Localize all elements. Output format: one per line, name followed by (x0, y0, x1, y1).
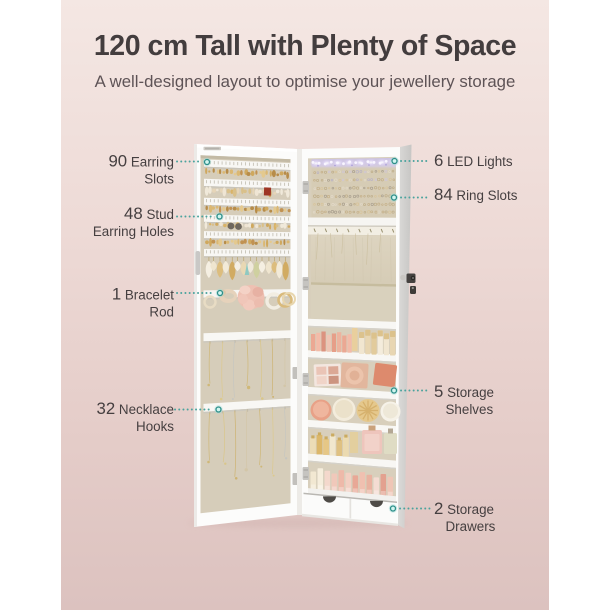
svg-text:A well-designed layout to opti: A well-designed layout to optimise your … (95, 72, 516, 91)
svg-text:48 Stud: 48 Stud (124, 204, 174, 223)
svg-text:Rod: Rod (149, 305, 174, 320)
svg-text:90 Earring: 90 Earring (108, 152, 174, 171)
svg-text:32 Necklace: 32 Necklace (97, 399, 174, 418)
svg-text:Earring Holes: Earring Holes (93, 224, 174, 239)
svg-text:2 Storage: 2 Storage (434, 499, 494, 518)
svg-text:6 LED Lights: 6 LED Lights (434, 151, 513, 170)
svg-text:5 Storage: 5 Storage (434, 382, 494, 401)
svg-text:1 Bracelet: 1 Bracelet (112, 285, 174, 304)
svg-text:Slots: Slots (144, 172, 174, 187)
svg-text:Drawers: Drawers (446, 519, 496, 534)
svg-text:84 Ring Slots: 84 Ring Slots (434, 185, 518, 204)
svg-text:120 cm Tall with Plenty of Spa: 120 cm Tall with Plenty of Space (94, 30, 516, 62)
svg-text:Shelves: Shelves (446, 402, 494, 417)
svg-text:Hooks: Hooks (136, 419, 174, 434)
